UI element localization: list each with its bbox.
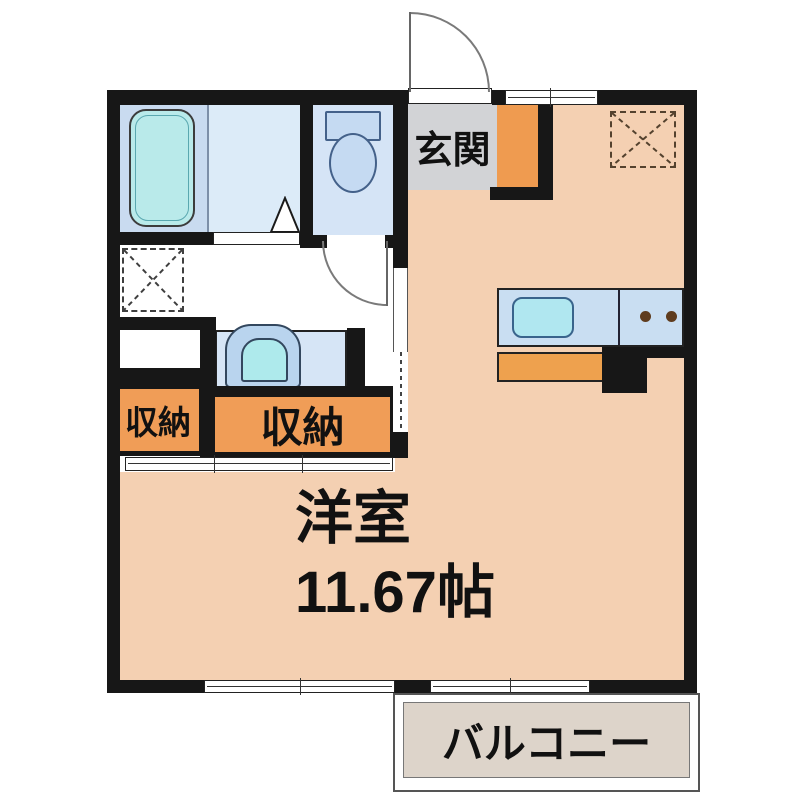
entrance-door-swing-icon [410, 12, 490, 92]
outer-wall-bottom-left [107, 680, 204, 693]
outer-wall-bottom-mid-post [395, 680, 430, 693]
floor-plan: 収納 収納 バルコニー [0, 0, 800, 800]
outer-wall-left [107, 90, 120, 693]
toilet-door-leaf [386, 241, 388, 306]
corridor-sliding-door [125, 457, 393, 471]
kitchen-cabinet [497, 352, 604, 382]
entrance-bottom-wall [490, 187, 553, 200]
western-room-size: 11.67帖 [295, 556, 495, 630]
outer-wall-bottom-right [590, 680, 697, 693]
entrance-label: 玄関 [414, 119, 490, 174]
western-room-label-block: 洋室 11.67帖 [295, 482, 495, 630]
bathtub-inner-line [135, 115, 189, 221]
center-wall-upper [393, 90, 408, 268]
shower-doorway [213, 232, 300, 245]
kitchen-sink-icon [512, 297, 574, 338]
entrance-door-leaf [409, 12, 411, 92]
shoe-cabinet [497, 103, 538, 188]
balcony-label: バルコニー [442, 710, 651, 771]
toilet-bowl-icon [329, 133, 377, 193]
window-bottom-left [204, 680, 395, 693]
kitchen-counter-divider [618, 290, 620, 345]
washbasin-side-wall [347, 328, 365, 390]
washbasin-bowl-icon [241, 338, 288, 382]
sliding-partition-icon [393, 352, 408, 432]
window-bottom-right [430, 680, 590, 693]
shower-door-triangle-icon [268, 196, 304, 234]
outer-wall-top-left [107, 90, 408, 105]
outer-wall-right [684, 90, 697, 693]
corridor-shelf [118, 330, 200, 368]
storage-right-label: 収納 [260, 394, 344, 455]
window-top [505, 90, 598, 105]
storage-right: 収納 [210, 392, 395, 457]
western-room-label: 洋室 [295, 482, 495, 556]
outer-wall-top-right [598, 90, 697, 105]
storage-left: 収納 [112, 384, 204, 456]
balcony: バルコニー [403, 702, 690, 778]
entrance-label-box: 玄関 [408, 103, 497, 190]
corridor-passage [393, 268, 408, 352]
stove-burners-icon [640, 311, 680, 323]
bathtub-icon [129, 109, 195, 227]
center-wall-lower [393, 432, 408, 458]
shower-toilet-wall [300, 103, 313, 248]
bathroom-bottom-wall [107, 232, 213, 245]
washing-machine-space-icon [122, 248, 184, 312]
kitchen-end-wall-block [602, 347, 647, 393]
storage-left-label: 収納 [125, 396, 191, 444]
entrance-side-wall [538, 100, 553, 200]
refrigerator-space-icon [610, 111, 676, 168]
